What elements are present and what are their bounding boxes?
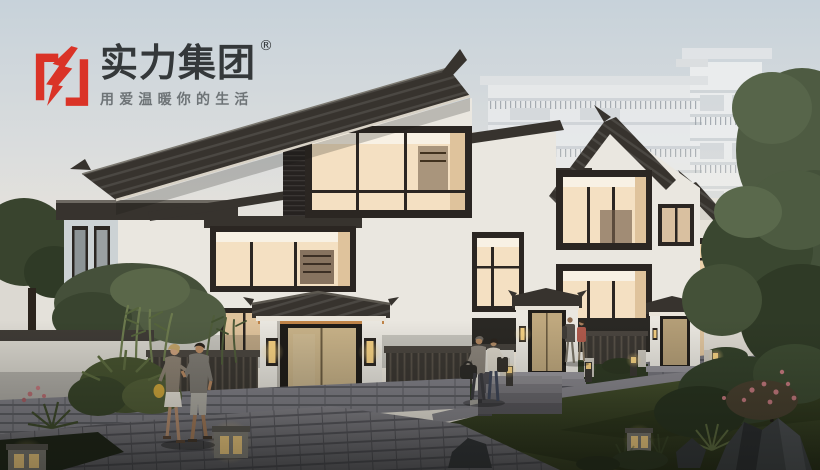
brand-tagline: 用爱温暖你的生活 xyxy=(100,89,273,109)
brand-name: 实力集团 xyxy=(100,44,256,82)
architectural-render: 实力集团 ® 用爱温暖你的生活 xyxy=(0,0,820,470)
brand-logo: 实力集团 ® 用爱温暖你的生活 xyxy=(34,44,273,109)
brand-text-block: 实力集团 ® 用爱温暖你的生活 xyxy=(100,44,273,109)
lightning-brackets-icon xyxy=(34,44,90,108)
registered-trademark: ® xyxy=(259,39,273,53)
dusk-overlay xyxy=(0,320,820,470)
